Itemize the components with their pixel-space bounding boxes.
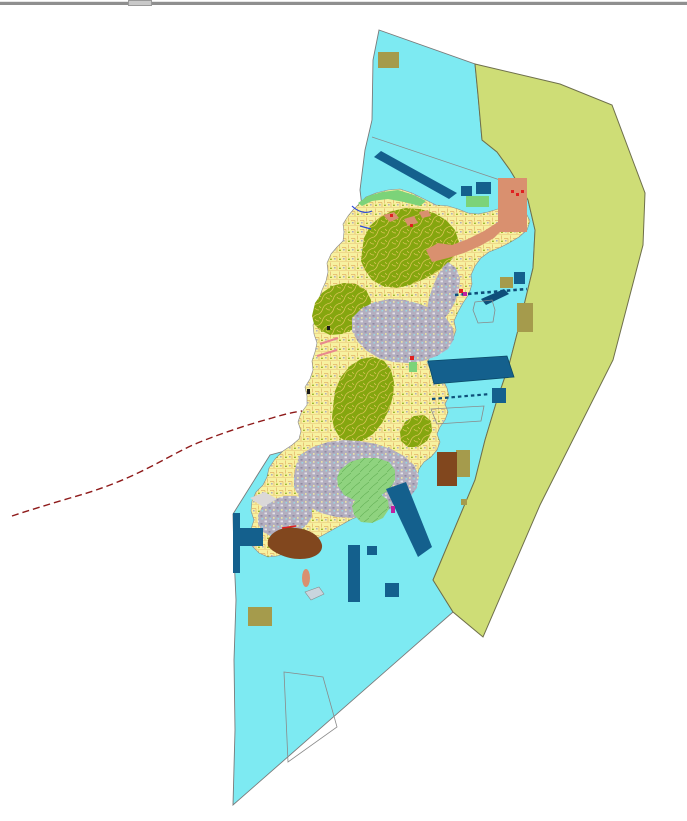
black-marker-a xyxy=(307,389,310,394)
north-green-block xyxy=(466,196,489,207)
map-viewport[interactable] xyxy=(0,0,687,821)
facility-block-east-large xyxy=(517,303,533,332)
map-application-viewport xyxy=(0,0,687,821)
islet-salmon xyxy=(302,569,310,587)
industrial-block-southeast xyxy=(437,452,457,486)
greenspace-harbor-side xyxy=(409,362,417,372)
facility-block-top xyxy=(378,52,399,68)
facility-block-east-small xyxy=(500,277,513,288)
west-jetty-arm xyxy=(239,528,263,546)
magenta-marker-south xyxy=(391,506,395,513)
facility-block-southwest xyxy=(248,607,272,626)
north-harbor-block-a xyxy=(476,182,491,194)
red-marker-harbor xyxy=(410,356,414,360)
port-signal-red xyxy=(459,289,463,293)
map-canvas[interactable] xyxy=(0,0,687,821)
north-harbor-block-b xyxy=(461,186,472,196)
west-jetty-vertical xyxy=(233,513,240,573)
south-pier xyxy=(348,545,360,602)
south-harbor-square xyxy=(385,583,399,597)
south-pier-block xyxy=(367,546,377,555)
harbor-block-east xyxy=(492,388,506,403)
harbor-block-ne xyxy=(514,272,525,284)
port-signal-magenta xyxy=(463,292,467,296)
facility-block-southeast xyxy=(456,450,470,477)
khaki-marker-dot xyxy=(461,499,467,505)
black-marker-b xyxy=(327,326,330,330)
